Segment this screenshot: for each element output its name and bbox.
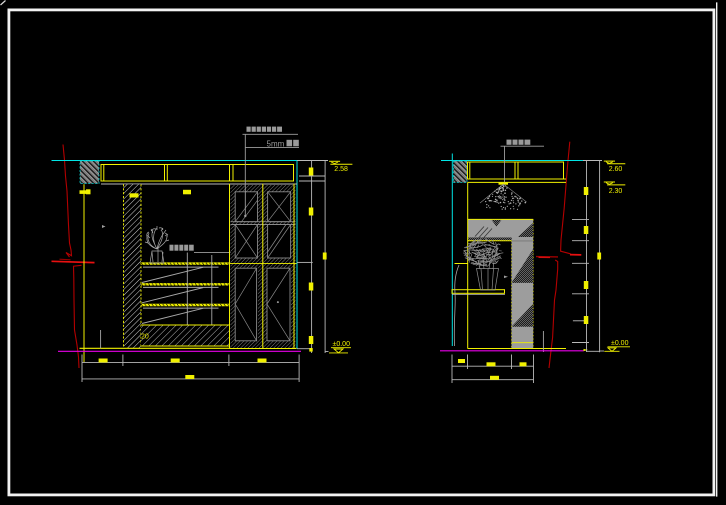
svg-text:±0.00: ±0.00 — [333, 341, 351, 348]
svg-text:20: 20 — [141, 334, 149, 341]
svg-text:5mm: 5mm — [267, 139, 285, 148]
svg-text:2.30: 2.30 — [609, 188, 623, 195]
svg-text:2.60: 2.60 — [609, 166, 623, 173]
svg-text:2.58: 2.58 — [334, 166, 348, 173]
svg-text:±0.00: ±0.00 — [611, 340, 629, 347]
